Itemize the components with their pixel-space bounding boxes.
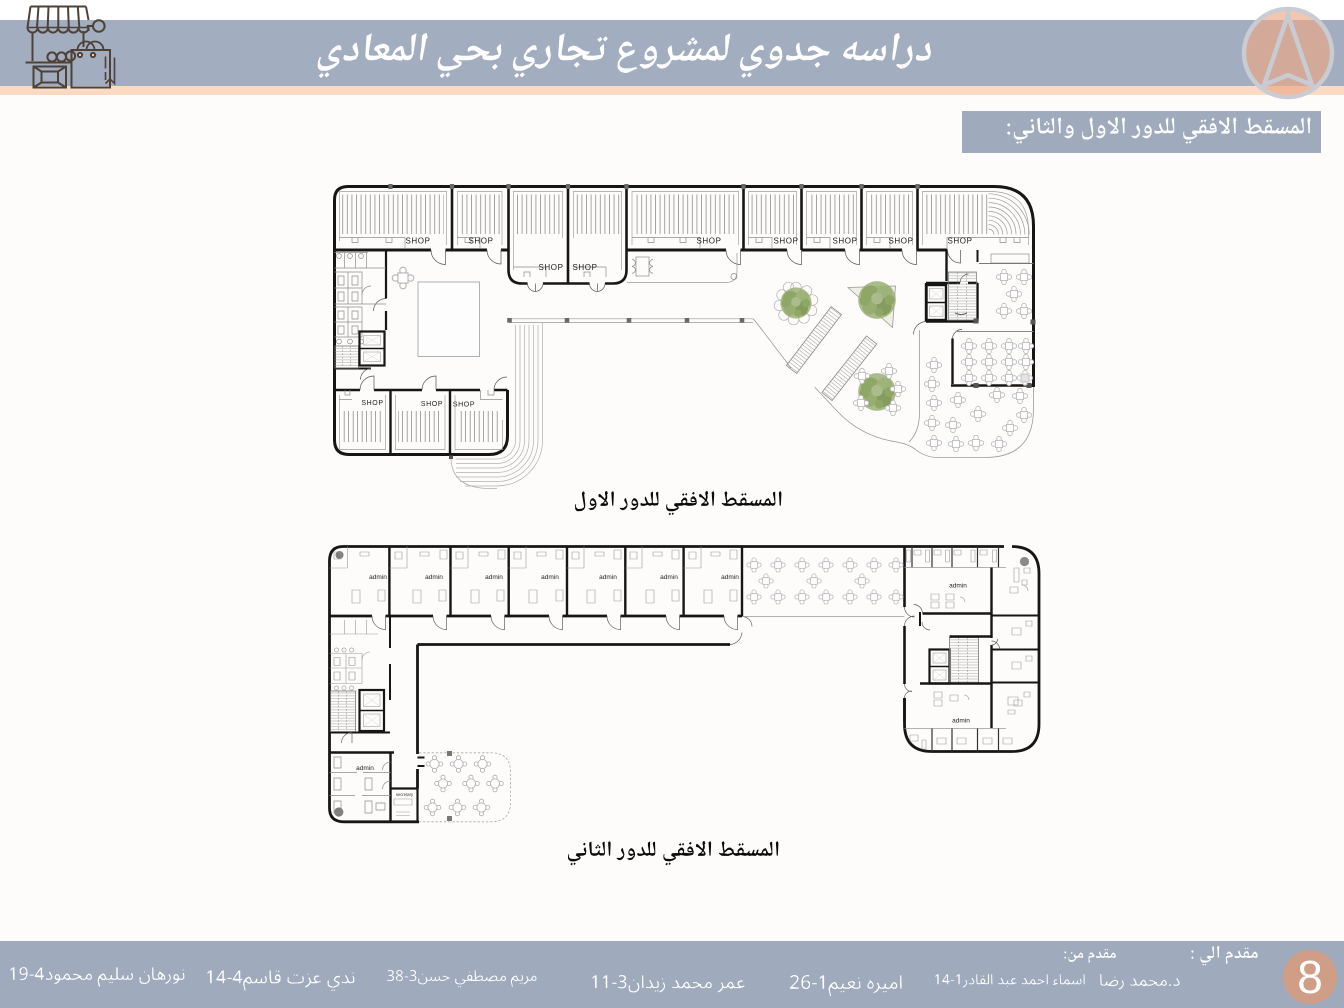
- svg-text:SHOP: SHOP: [361, 400, 383, 407]
- svg-text:SHOP: SHOP: [538, 263, 563, 272]
- svg-text:admin: admin: [425, 574, 443, 581]
- svg-text:SHOP: SHOP: [773, 237, 798, 246]
- svg-text:SHOP: SHOP: [832, 237, 857, 246]
- svg-text:SHOP: SHOP: [405, 237, 430, 246]
- svg-text:admin: admin: [949, 583, 967, 590]
- svg-text:admin: admin: [721, 574, 739, 581]
- svg-text:SHOP: SHOP: [421, 401, 443, 408]
- svg-text:SHOP: SHOP: [572, 263, 597, 272]
- svg-text:admin: admin: [541, 574, 559, 581]
- svg-text:admin: admin: [369, 574, 387, 581]
- svg-text:SHOP: SHOP: [453, 402, 475, 409]
- svg-text:SHOP: SHOP: [696, 237, 721, 246]
- svg-text:admin: admin: [599, 574, 617, 581]
- svg-text:admin: admin: [660, 574, 678, 581]
- svg-text:admin: admin: [485, 574, 503, 581]
- svg-text:SHOP: SHOP: [947, 237, 972, 246]
- svg-text:SHOP: SHOP: [888, 237, 913, 246]
- svg-text:admin: admin: [952, 718, 970, 725]
- svg-text:admin: admin: [356, 765, 374, 772]
- svg-text:secretary: secretary: [396, 792, 414, 797]
- svg-text:SHOP: SHOP: [468, 237, 493, 246]
